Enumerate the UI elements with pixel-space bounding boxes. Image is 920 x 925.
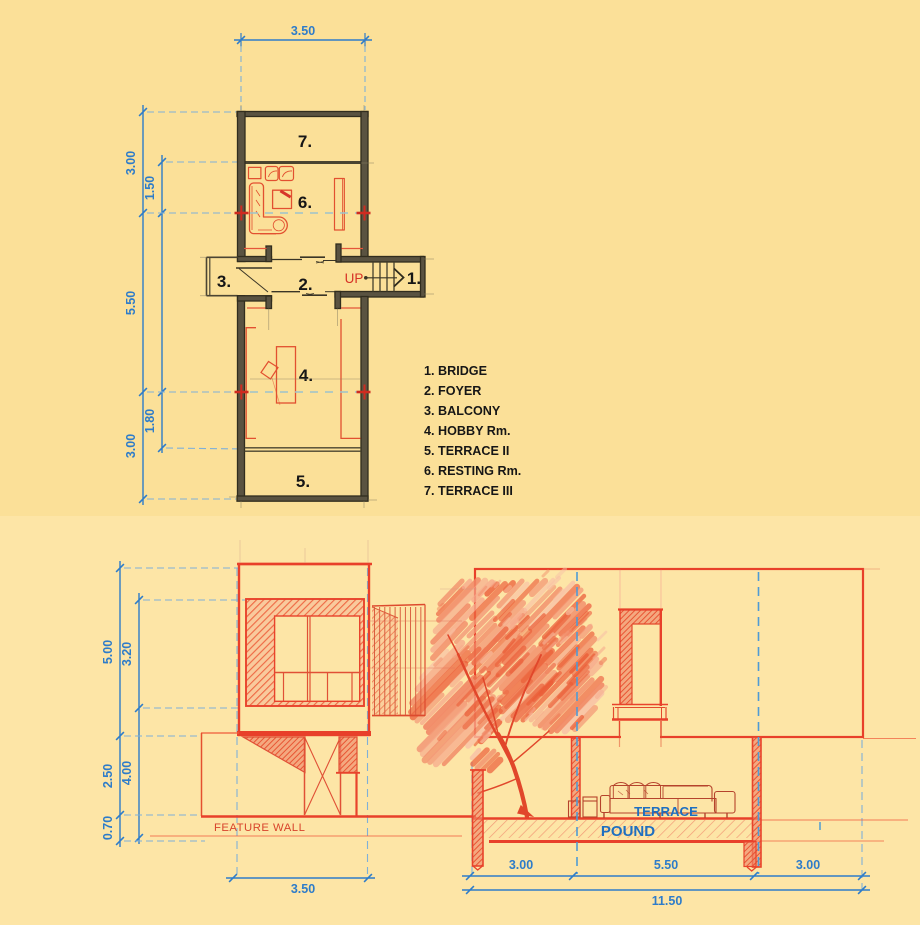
svg-text:4.: 4. <box>299 366 313 385</box>
svg-text:6.: 6. <box>298 193 312 212</box>
svg-text:6. RESTING Rm.: 6. RESTING Rm. <box>424 464 521 478</box>
svg-text:UP: UP <box>345 271 364 286</box>
svg-text:TERRACE: TERRACE <box>634 804 698 819</box>
svg-text:3.50: 3.50 <box>291 882 315 896</box>
svg-text:3.00: 3.00 <box>124 151 138 175</box>
svg-text:FEATURE WALL: FEATURE WALL <box>214 822 305 834</box>
svg-text:3.: 3. <box>217 272 231 291</box>
svg-text:0.70: 0.70 <box>101 816 115 840</box>
svg-text:7. TERRACE III: 7. TERRACE III <box>424 484 513 498</box>
svg-text:1.50: 1.50 <box>143 176 157 200</box>
svg-text:1.80: 1.80 <box>143 409 157 433</box>
svg-text:1.: 1. <box>407 269 421 288</box>
svg-text:5.50: 5.50 <box>654 858 678 872</box>
svg-text:5.: 5. <box>296 472 310 491</box>
svg-text:5.50: 5.50 <box>124 291 138 315</box>
svg-text:POUND: POUND <box>601 823 655 840</box>
svg-text:3. BALCONY: 3. BALCONY <box>424 404 501 418</box>
svg-text:3.20: 3.20 <box>120 642 134 666</box>
svg-text:2. FOYER: 2. FOYER <box>424 384 481 398</box>
svg-text:3.50: 3.50 <box>291 24 315 38</box>
svg-text:3.00: 3.00 <box>796 858 820 872</box>
svg-text:4. HOBBY Rm.: 4. HOBBY Rm. <box>424 424 511 438</box>
svg-text:4.00: 4.00 <box>120 761 134 785</box>
svg-text:1. BRIDGE: 1. BRIDGE <box>424 364 487 378</box>
svg-text:11.50: 11.50 <box>652 894 683 908</box>
svg-text:5.00: 5.00 <box>101 640 115 664</box>
svg-text:3.00: 3.00 <box>124 434 138 458</box>
svg-text:5. TERRACE II: 5. TERRACE II <box>424 444 509 458</box>
svg-text:2.: 2. <box>298 275 312 294</box>
svg-text:3.00: 3.00 <box>509 858 533 872</box>
svg-text:7.: 7. <box>298 132 312 151</box>
svg-text:2.50: 2.50 <box>101 764 115 788</box>
